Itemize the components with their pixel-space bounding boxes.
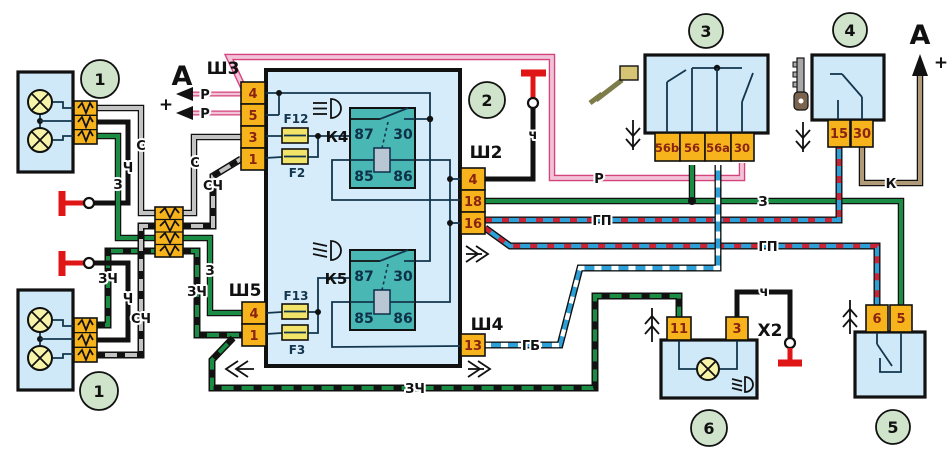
fog-lamp: 11 3 X2: [661, 317, 782, 398]
lamp6-pin-3: 3: [732, 322, 741, 337]
key-icon: [793, 58, 808, 110]
k4-terminal-30: 30: [393, 127, 413, 143]
sh3-label: Ш3: [207, 59, 240, 79]
ignition-switch: 15 30: [812, 55, 884, 147]
fuse-f3-label: F3: [289, 343, 306, 357]
label-ch-lamp-ground: ч: [760, 285, 769, 300]
label-z-sh5: З: [205, 264, 214, 279]
sh3-pin-4: 4: [248, 87, 257, 102]
k5-terminal-85: 85: [354, 311, 373, 327]
ground-symbol-bottom-left: [62, 251, 94, 276]
ground-symbol-top-left: [62, 191, 94, 216]
label-z-top: З: [113, 178, 122, 193]
k4-terminal-86: 86: [393, 169, 412, 185]
label-p-main: Р: [594, 172, 604, 187]
chevron-left-bottom: [226, 361, 254, 377]
branch-arrow-up-1: [843, 300, 857, 334]
fog-switch: 6 5: [855, 305, 925, 397]
label-ch-bottom: Ч: [123, 292, 134, 307]
label-sch-sh3: СЧ: [203, 179, 223, 194]
fuse-f12-label: F12: [284, 112, 309, 126]
label-ch-top: Ч: [123, 161, 134, 176]
sh2-pin-4: 4: [468, 173, 477, 188]
label-zch-left: ЗЧ: [98, 272, 118, 287]
sh3-pin-3: 3: [248, 131, 257, 146]
switch3-pin-56b: 56b: [655, 141, 679, 155]
marker-plus-right: +: [934, 53, 948, 73]
sh5-pin-4: 4: [249, 307, 258, 322]
relay-k5-label: К5: [325, 270, 348, 288]
label-k: К: [886, 177, 897, 192]
k4-terminal-85: 85: [354, 169, 373, 185]
k5-terminal-87: 87: [354, 269, 373, 285]
label-gp-upper: ГП: [592, 214, 611, 229]
column-switch: 56b 56 56a 30: [645, 55, 768, 161]
sh3-pin-1: 1: [248, 153, 257, 168]
wiring-diagram: 87 30 85 86 К4 87 30 85 86 К5 F12 F2 F13…: [0, 0, 949, 454]
branch-arrow-down-2: [796, 122, 810, 152]
k5-terminal-30: 30: [393, 269, 413, 285]
sh4-label: Ш4: [471, 315, 504, 335]
label-gp-lower: ГП: [758, 240, 777, 255]
k4-terminal-87: 87: [354, 127, 373, 143]
sh4-pin-13: 13: [464, 339, 482, 354]
callout-2: 2: [481, 91, 492, 110]
ground-symbol-sh2: [521, 73, 546, 108]
sh2-pin-18: 18: [464, 195, 482, 210]
fuse-f13-label: F13: [284, 289, 309, 303]
branch-arrow-up-2: [645, 308, 659, 342]
switch3-pin-56: 56: [684, 141, 700, 155]
switch3-pin-30: 30: [734, 141, 750, 155]
label-sch-bottom: СЧ: [131, 312, 151, 327]
marker-plus-left: +: [159, 95, 173, 115]
label-s-sh3: С: [190, 156, 200, 171]
connector-sh4: 13 Ш4: [461, 315, 504, 356]
lamp6-pin-11: 11: [670, 322, 688, 337]
callout-1-top: 1: [94, 70, 105, 89]
callout-6: 6: [703, 419, 714, 438]
sh2-pin-16: 16: [464, 217, 482, 232]
marker-a-left: А: [172, 61, 193, 92]
sh2-label: Ш2: [470, 143, 503, 163]
label-zch-bottom: ЗЧ: [405, 382, 425, 397]
switch5-pin-6: 6: [872, 312, 881, 327]
headlamp-bottom: [18, 290, 97, 390]
callout-3: 3: [700, 22, 711, 41]
label-s-top: С: [136, 139, 146, 154]
relay-k4-label: К4: [326, 128, 349, 146]
chevron-right-mid: [466, 246, 488, 262]
label-gb: ГБ: [522, 339, 540, 354]
sh3-pin-5: 5: [248, 109, 257, 124]
splice-connector: [155, 207, 183, 257]
sh5-pin-1: 1: [249, 329, 258, 344]
label-p1: Р: [200, 88, 210, 103]
chevron-right-bottom: [468, 361, 490, 377]
stalk-lever-icon: [590, 66, 638, 103]
diagram-canvas: 87 30 85 86 К4 87 30 85 86 К5 F12 F2 F13…: [0, 0, 949, 454]
switch5-pin-5: 5: [896, 312, 905, 327]
marker-a-right: А: [910, 20, 931, 51]
label-p2: Р: [200, 107, 210, 122]
callout-5: 5: [887, 418, 898, 437]
switch4-pin-15: 15: [830, 127, 848, 142]
callout-4: 4: [844, 21, 855, 40]
ground-symbol-lamp6: [778, 338, 802, 363]
fuse-f2-label: F2: [289, 166, 306, 180]
label-ch-sh2-ground: ч: [529, 128, 538, 143]
x2-label: X2: [758, 321, 783, 341]
label-zch-sh5: ЗЧ: [187, 285, 207, 300]
k5-terminal-86: 86: [393, 311, 412, 327]
sh5-label: Ш5: [229, 281, 262, 301]
label-z-main: З: [758, 195, 767, 210]
callout-1-bottom: 1: [93, 382, 104, 401]
switch4-pin-30: 30: [853, 127, 871, 142]
branch-arrow-down-1: [626, 120, 640, 150]
switch3-pin-56a: 56a: [706, 141, 730, 155]
